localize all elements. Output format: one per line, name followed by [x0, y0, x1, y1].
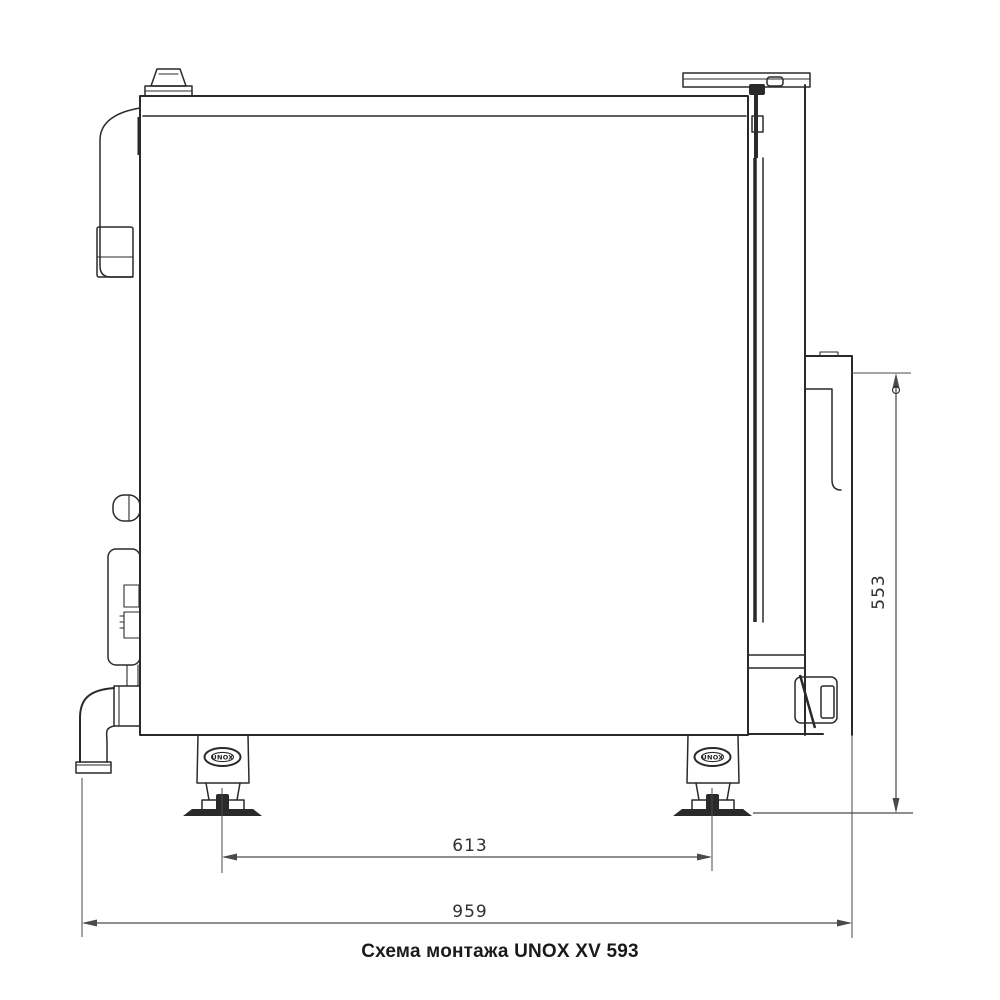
bracket-hook [805, 389, 841, 490]
connection-tab-2 [124, 612, 140, 638]
arrow-959-left [82, 920, 97, 927]
side-knob [113, 495, 140, 521]
cover-plate-clip [767, 77, 783, 86]
drain-end-cap [76, 762, 111, 773]
cabinet-outline [140, 96, 748, 735]
installation-diagram-page: UNOX [0, 0, 1000, 1000]
arrow-959-right [837, 920, 852, 927]
drain-elbow-outer [80, 688, 114, 762]
dim-label-959: 959 [452, 902, 487, 922]
drain-elbow-inner [107, 726, 114, 762]
upper-panel-outline [100, 108, 140, 277]
top-hinge-knuckle [749, 84, 765, 95]
knob-body [113, 495, 140, 521]
oven-door [748, 84, 837, 735]
top-vent-cap [145, 69, 192, 96]
oven-body [76, 69, 913, 816]
installation-drawing: UNOX [0, 0, 1000, 1000]
dim-label-613: 613 [452, 836, 487, 856]
vent-cap-trapezoid [151, 69, 186, 86]
drain-pipe [76, 665, 140, 773]
connection-tab-1 [124, 585, 139, 607]
cover-plate [683, 73, 810, 87]
bracket-outline [805, 356, 852, 735]
arrow-613-left [222, 854, 237, 861]
dimension-553: 553 [852, 373, 911, 813]
top-cover-plate [683, 73, 810, 87]
connection-teeth [120, 616, 124, 628]
dimension-613: 613 [222, 788, 712, 873]
door-bottom-lines [748, 655, 805, 668]
drain-flange [114, 686, 140, 726]
upper-panel-box [97, 227, 133, 277]
arrow-553-bottom [893, 798, 900, 813]
left-connection-panel [108, 549, 140, 665]
diagram-caption: Схема монтажа UNOX XV 593 [0, 941, 1000, 963]
drain-neck [127, 665, 138, 686]
dim-label-553: 553 [869, 574, 889, 609]
arrow-613-right [697, 854, 712, 861]
lower-hinge-pad [821, 686, 834, 718]
left-upper-panel [97, 108, 140, 277]
arrow-553-top [893, 373, 900, 388]
lower-hinge-strut [800, 675, 815, 728]
